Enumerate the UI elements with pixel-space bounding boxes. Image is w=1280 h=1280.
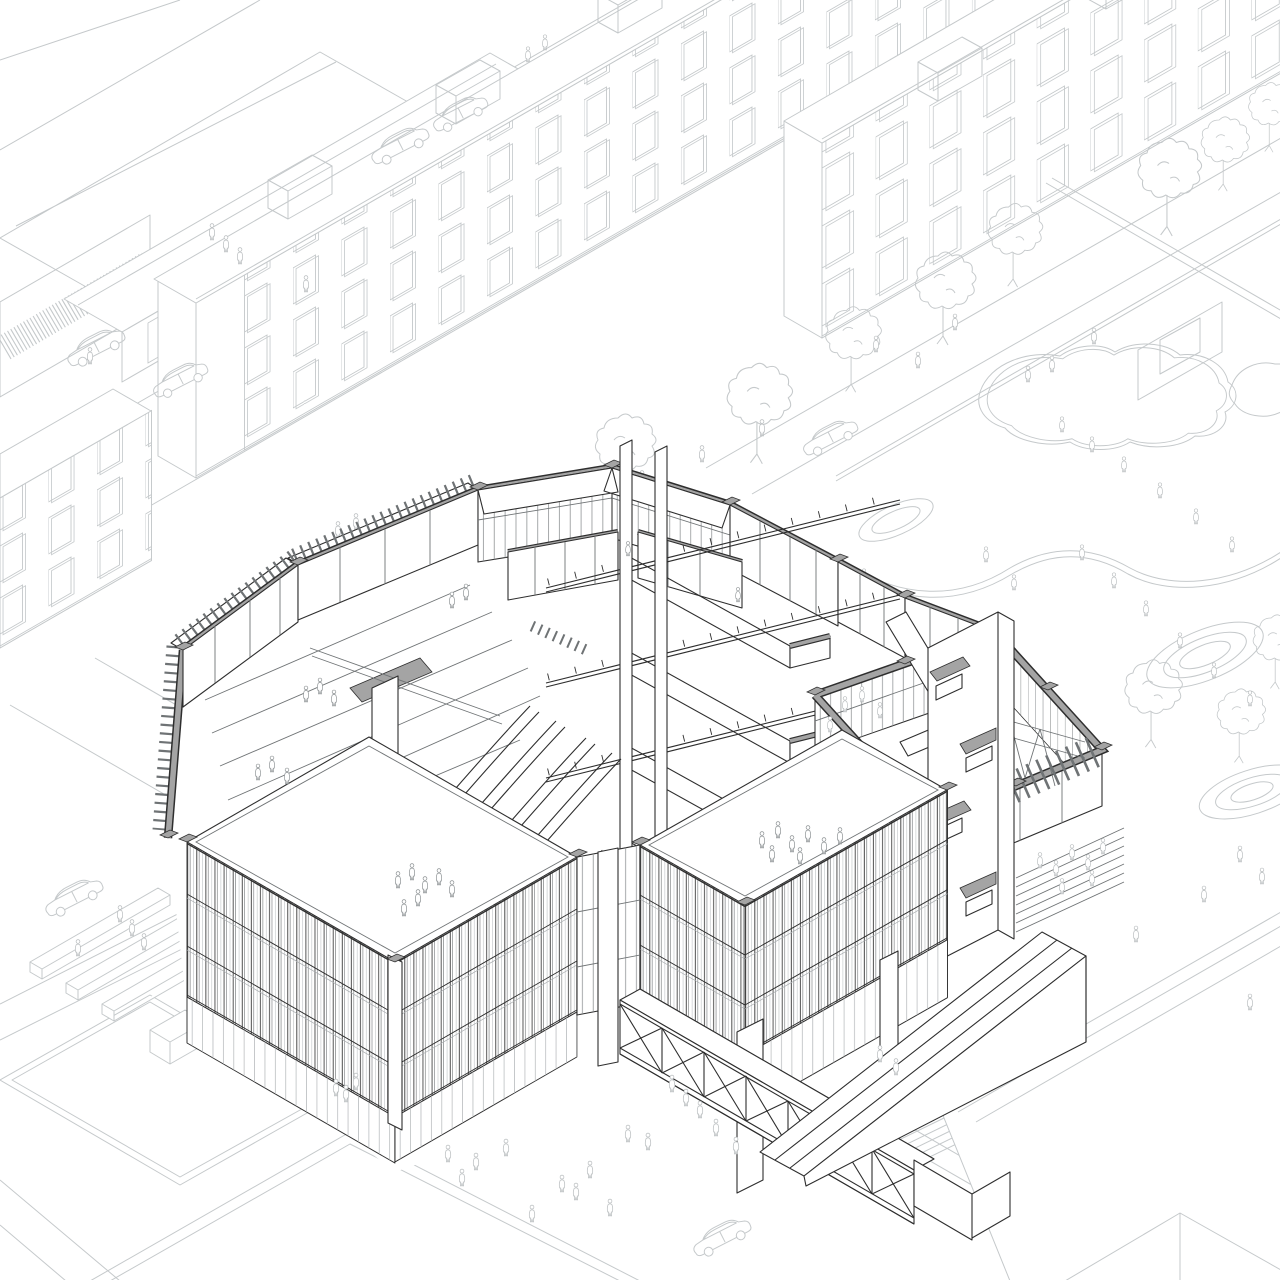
- apartment-slab-west: [0, 389, 152, 648]
- drawing-page: [0, 0, 1280, 1280]
- axonometric-drawing: [0, 0, 1280, 1280]
- bay-column: [598, 848, 618, 1066]
